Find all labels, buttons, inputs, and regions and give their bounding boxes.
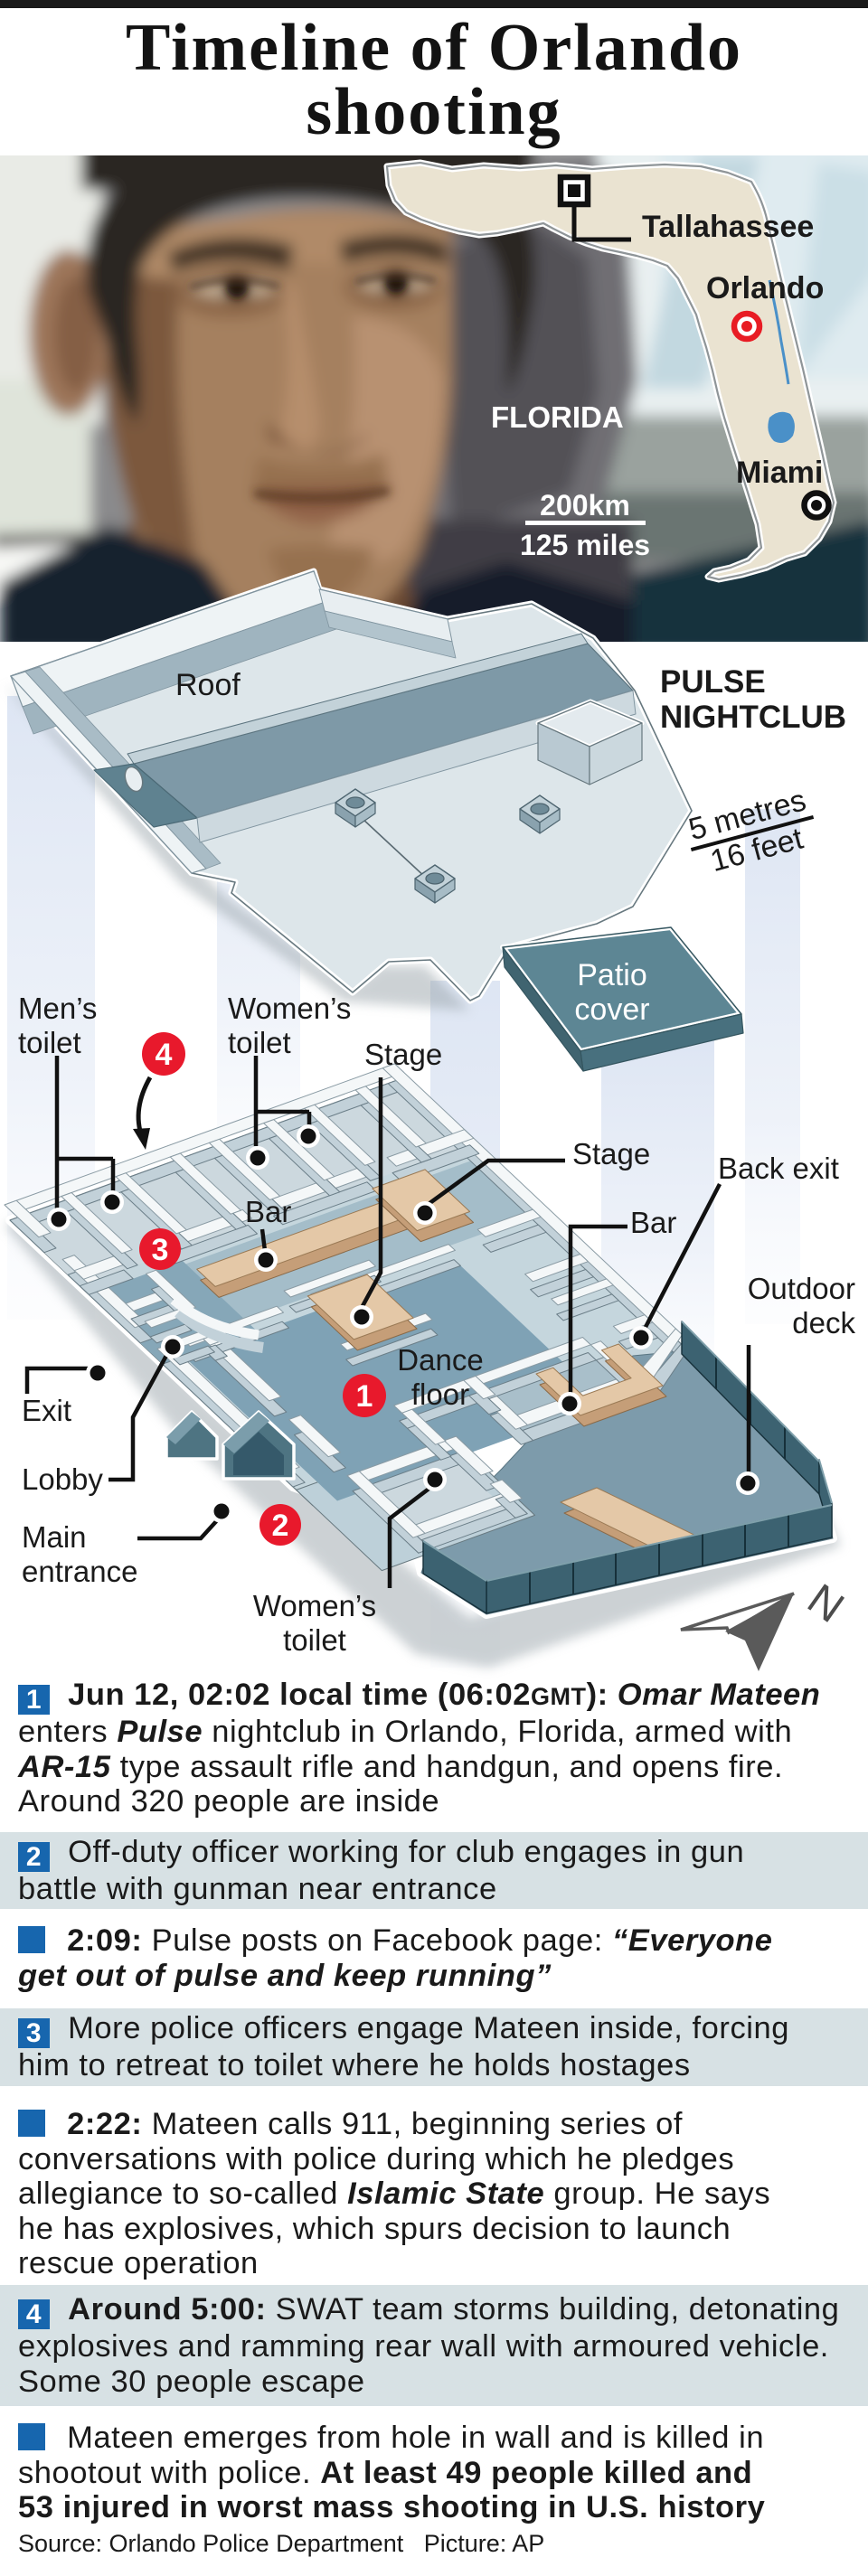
svg-text:4: 4 bbox=[156, 1038, 173, 1072]
svg-text:Men’s: Men’s bbox=[18, 992, 97, 1025]
svg-text:Dance: Dance bbox=[397, 1343, 483, 1377]
svg-text:Roof: Roof bbox=[175, 668, 241, 702]
svg-text:entrance: entrance bbox=[22, 1555, 137, 1588]
svg-text:2: 2 bbox=[272, 1509, 289, 1543]
svg-text:toilet: toilet bbox=[18, 1026, 81, 1059]
svg-text:3: 3 bbox=[152, 1233, 169, 1267]
svg-text:toilet: toilet bbox=[283, 1623, 346, 1657]
svg-text:Patio: Patio bbox=[577, 958, 647, 992]
svg-text:cover: cover bbox=[574, 992, 649, 1027]
svg-text:Orlando: Orlando bbox=[706, 271, 824, 306]
svg-text:FLORIDA: FLORIDA bbox=[491, 400, 624, 434]
svg-text:NIGHTCLUB: NIGHTCLUB bbox=[660, 700, 846, 735]
svg-text:toilet: toilet bbox=[228, 1026, 291, 1059]
svg-text:Women’s: Women’s bbox=[253, 1589, 376, 1622]
svg-text:PULSE: PULSE bbox=[660, 664, 766, 700]
svg-text:1: 1 bbox=[356, 1379, 373, 1414]
svg-text:Bar: Bar bbox=[630, 1206, 676, 1239]
svg-text:deck: deck bbox=[792, 1306, 855, 1340]
svg-text:Women’s: Women’s bbox=[228, 992, 351, 1025]
svg-text:Back exit: Back exit bbox=[718, 1152, 839, 1185]
svg-text:Stage: Stage bbox=[572, 1137, 650, 1170]
svg-text:Bar: Bar bbox=[245, 1195, 291, 1228]
svg-text:Stage: Stage bbox=[364, 1038, 442, 1071]
svg-text:200km: 200km bbox=[540, 489, 630, 522]
svg-text:Tallahassee: Tallahassee bbox=[642, 210, 814, 244]
svg-text:Outdoor: Outdoor bbox=[748, 1272, 855, 1305]
svg-text:N: N bbox=[799, 1575, 853, 1632]
svg-text:floor: floor bbox=[411, 1377, 469, 1411]
svg-text:Lobby: Lobby bbox=[22, 1462, 103, 1496]
svg-text:Miami: Miami bbox=[736, 456, 823, 490]
svg-text:Main: Main bbox=[22, 1520, 87, 1554]
svg-text:Exit: Exit bbox=[22, 1394, 71, 1427]
